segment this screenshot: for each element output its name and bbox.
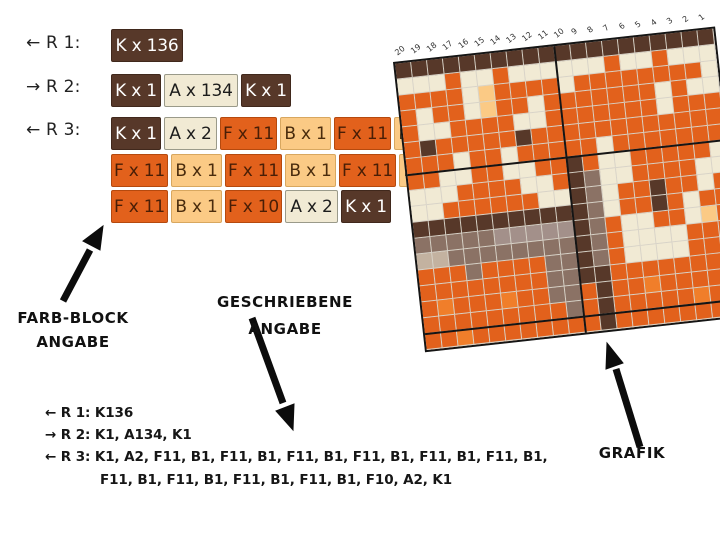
color-block: B x 1: [171, 190, 222, 223]
grid-cell: [480, 101, 498, 119]
chart-column-number: 10: [550, 28, 567, 44]
grid-cell: [627, 117, 645, 135]
grid-cell: [462, 232, 480, 250]
grid-cell: [687, 223, 705, 241]
grid-cell: [593, 249, 611, 267]
grid-cell: [671, 80, 689, 98]
grid-cell: [441, 331, 459, 349]
farb-block-arrow-line: [63, 250, 90, 301]
grid-cell: [453, 297, 471, 315]
grid-cell: [641, 99, 659, 117]
grid-cell: [577, 251, 595, 269]
grid-cell: [498, 260, 516, 278]
grid-cell: [685, 207, 703, 225]
grid-cell: [586, 41, 604, 59]
grid-cell: [674, 112, 692, 130]
chart-column-number: 4: [646, 17, 663, 33]
grid-cell: [681, 30, 699, 48]
grid-cell: [425, 187, 443, 205]
grid-cell: [508, 66, 526, 84]
grid-cell: [429, 74, 447, 92]
grid-cell: [473, 327, 491, 345]
color-block: F x 11: [111, 190, 168, 223]
grid-cell: [492, 67, 510, 85]
grid-cell: [400, 110, 418, 128]
grid-cell: [411, 60, 429, 78]
grid-cell: [680, 159, 698, 177]
grid-cell: [526, 225, 544, 243]
grid-cell: [491, 51, 509, 69]
grid-cell: [510, 82, 528, 100]
chart-column-number: 14: [487, 35, 504, 51]
written-line-r3: ← R 3: K1, A2, F11, B1, F11, B1, F11, B1…: [45, 449, 548, 465]
grid-cell: [418, 124, 436, 142]
grid-cell: [667, 193, 685, 211]
grid-cell: [596, 281, 614, 299]
grid-cell: [590, 73, 608, 91]
grid-cell: [669, 64, 687, 82]
grid-cell: [648, 308, 666, 326]
grid-cell: [683, 46, 701, 64]
color-block: F x 10: [225, 190, 282, 223]
grid-cell: [482, 117, 500, 135]
chart-column-number: 3: [662, 15, 679, 31]
grid-cell: [524, 64, 542, 82]
grid-cell: [572, 59, 590, 77]
color-block: A x 134: [164, 74, 238, 107]
grid-cell: [604, 55, 622, 73]
grid-cell: [634, 36, 652, 54]
grid-cell: [475, 53, 493, 71]
grid-cell: [510, 226, 528, 244]
grid-cell: [482, 262, 500, 280]
grid-cell: [591, 89, 609, 107]
grid-cell: [521, 177, 539, 195]
color-block: K x 1: [111, 117, 161, 150]
row-label-r2: → R 2:: [26, 77, 81, 97]
grid-cell: [568, 172, 586, 190]
grid-cell: [630, 149, 648, 167]
grid-cell: [667, 48, 685, 66]
grid-cell: [529, 112, 547, 130]
grid-cell: [441, 186, 459, 204]
chart-column-number: 17: [439, 40, 456, 56]
grid-cell: [409, 189, 427, 207]
grid-cell: [636, 52, 654, 70]
grid-cell: [466, 263, 484, 281]
grid-cell: [658, 113, 676, 131]
grid-cell: [637, 212, 655, 230]
grid-cell: [503, 163, 521, 181]
grid-cell: [413, 76, 431, 94]
grid-cell: [462, 87, 480, 105]
chart-column-number: 2: [678, 14, 695, 30]
grid-cell: [476, 69, 494, 87]
grid-cell: [641, 244, 659, 262]
grid-cell: [492, 212, 510, 230]
grid-cell: [491, 196, 509, 214]
grid-cell: [648, 163, 666, 181]
chart-column-number: 12: [519, 31, 536, 47]
grid-cell: [666, 32, 684, 50]
color-block: F x 11: [111, 154, 168, 187]
grid-cell: [429, 219, 447, 237]
grid-cell: [556, 60, 574, 78]
grid-cell: [450, 120, 468, 138]
grid-cell: [415, 237, 433, 255]
grid-cell: [664, 161, 682, 179]
grid-cell: [528, 241, 546, 259]
geschriebene-label-line2: ANGABE: [205, 316, 365, 343]
grid-cell: [673, 96, 691, 114]
color-block: B x 1: [280, 117, 331, 150]
grid-cell: [609, 103, 627, 121]
grid-cell: [607, 87, 625, 105]
grid-cell: [484, 133, 502, 151]
grid-cell: [446, 89, 464, 107]
grid-cell: [681, 175, 699, 193]
tutorial-diagram: ← R 1: → R 2: ← R 3: K x 136K x 1A x 134…: [0, 0, 720, 540]
grid-cell: [644, 276, 662, 294]
grid-cell: [699, 45, 717, 63]
chart-column-number: 5: [630, 19, 647, 35]
grid-cell: [423, 172, 441, 190]
grid-cell: [524, 209, 542, 227]
grid-cell: [713, 172, 720, 190]
grid-cell: [683, 191, 701, 209]
grid-cell: [464, 103, 482, 121]
grid-cell: [452, 281, 470, 299]
grid-cell: [549, 287, 567, 305]
chart-column-number: 20: [391, 45, 408, 61]
grid-cell: [475, 198, 493, 216]
grid-cell: [657, 98, 675, 116]
grid-cell: [506, 195, 524, 213]
grid-cell: [439, 170, 457, 188]
grid-cell: [464, 248, 482, 266]
grid-cell: [448, 249, 466, 267]
chart-column-number: 8: [582, 24, 599, 40]
chart-column-number: 18: [423, 42, 440, 58]
grid-cell: [420, 140, 438, 158]
grid-cell: [632, 165, 650, 183]
grid-cell: [699, 189, 717, 207]
grid-cell: [460, 216, 478, 234]
geschriebene-label-line1: GESCHRIEBENE: [205, 289, 365, 316]
grid-cell: [579, 122, 597, 140]
grid-cell: [416, 108, 434, 126]
grid-cell: [704, 237, 720, 255]
grid-cell: [632, 310, 650, 328]
grid-cell: [520, 322, 538, 340]
grid-cell: [437, 299, 455, 317]
grid-cell: [443, 202, 461, 220]
grid-cell: [618, 37, 636, 55]
color-block: K x 1: [111, 74, 161, 107]
grid-cell: [591, 234, 609, 252]
grid-cell: [611, 119, 629, 137]
row-label-r1: ← R 1:: [26, 33, 81, 53]
grid-cell: [418, 269, 436, 287]
grid-cell: [621, 214, 639, 232]
grid-cell: [586, 186, 604, 204]
written-line-r2: → R 2: K1, A134, K1: [45, 427, 192, 443]
grid-cell: [697, 174, 715, 192]
grid-cell: [411, 205, 429, 223]
grid-cell: [455, 168, 473, 186]
grid-cell: [531, 272, 549, 290]
grid-cell: [628, 278, 646, 296]
grid-cell: [545, 255, 563, 273]
grid-cell: [533, 288, 551, 306]
grid-cell: [478, 85, 496, 103]
grid-cell: [494, 83, 512, 101]
grid-cell: [657, 242, 675, 260]
chart-grid: [393, 26, 720, 352]
grid-cell: [420, 285, 438, 303]
color-block: A x 2: [285, 190, 338, 223]
chart-column-number: 13: [503, 33, 520, 49]
grid-cell: [680, 304, 698, 322]
grid-cell: [614, 151, 632, 169]
grid-cell: [519, 161, 537, 179]
grid-cell: [512, 97, 530, 115]
grid-cell: [508, 211, 526, 229]
color-block: F x 11: [220, 117, 277, 150]
grid-cell: [415, 92, 433, 110]
grid-cell: [607, 232, 625, 250]
grid-cell: [430, 235, 448, 253]
grid-cell: [651, 195, 669, 213]
grid-cell: [457, 329, 475, 347]
grid-cell: [468, 135, 486, 153]
grid-cell: [584, 315, 602, 333]
grid-cell: [574, 75, 592, 93]
chart-column-number: 11: [534, 30, 551, 46]
grid-cell: [507, 50, 525, 68]
grid-cell: [487, 165, 505, 183]
grafik-arrow-line: [616, 369, 640, 447]
grid-cell: [445, 218, 463, 236]
grid-cell: [425, 332, 443, 350]
grid-cell: [600, 168, 618, 186]
grid-cell: [416, 253, 434, 271]
grid-cell: [595, 265, 613, 283]
grid-cell: [544, 239, 562, 257]
grid-cell: [655, 227, 673, 245]
grid-cell: [395, 62, 413, 80]
grid-cell: [588, 202, 606, 220]
chart-column-number: 15: [471, 37, 488, 53]
grid-cell: [531, 127, 549, 145]
grid-cell: [567, 156, 585, 174]
grid-cell: [651, 50, 669, 68]
grid-cell: [469, 295, 487, 313]
grid-cell: [434, 122, 452, 140]
grid-cell: [467, 279, 485, 297]
chart-column-number: 7: [598, 23, 615, 39]
grid-cell: [496, 99, 514, 117]
grid-cell: [616, 311, 634, 329]
knitting-chart: 2019181716151413121110987654321: [393, 26, 720, 352]
grid-cell: [688, 239, 706, 257]
written-line-r3-cont: F11, B1, F11, B1, F11, B1, F11, B1, F10,…: [100, 472, 452, 488]
grid-cell: [427, 59, 445, 77]
grid-cell: [505, 324, 523, 342]
color-block: A x 2: [164, 117, 217, 150]
grid-cell: [560, 92, 578, 110]
grid-cell: [623, 230, 641, 248]
grid-cell: [695, 303, 713, 321]
grid-cell: [427, 203, 445, 221]
grid-cell: [602, 184, 620, 202]
color-block: F x 11: [339, 154, 396, 187]
grid-cell: [625, 246, 643, 264]
grid-cell: [535, 159, 553, 177]
grid-cell: [600, 313, 618, 331]
grid-cell: [708, 269, 720, 287]
farb-block-label: FARB-BLOCK ANGABE: [8, 306, 138, 354]
grid-cell: [445, 73, 463, 91]
grid-cell: [706, 253, 720, 271]
farb-block-arrow-head: [83, 226, 103, 250]
grid-cell: [489, 180, 507, 198]
grid-cell: [639, 228, 657, 246]
grid-cell: [579, 267, 597, 285]
grid-cell: [703, 76, 720, 94]
grid-cell: [513, 258, 531, 276]
grid-cell: [627, 262, 645, 280]
grid-cell: [646, 147, 664, 165]
grid-cell: [593, 105, 611, 123]
grid-cell: [522, 193, 540, 211]
grid-cell: [494, 228, 512, 246]
grid-cell: [598, 152, 616, 170]
grid-cell: [450, 265, 468, 283]
grid-cell: [561, 108, 579, 126]
grid-cell: [620, 198, 638, 216]
farb-block-label-line1: FARB-BLOCK: [8, 306, 138, 330]
farb-block-label-line2: ANGABE: [8, 330, 138, 354]
grid-cell: [432, 251, 450, 269]
grid-cell: [637, 67, 655, 85]
grid-cell: [605, 71, 623, 89]
grid-cell: [570, 188, 588, 206]
grid-cell: [577, 106, 595, 124]
grid-cell: [612, 279, 630, 297]
grid-cell: [690, 255, 708, 273]
grid-cell: [432, 106, 450, 124]
grid-cell: [485, 294, 503, 312]
color-block: B x 1: [171, 154, 222, 187]
grid-cell: [701, 60, 719, 78]
grid-cell: [489, 325, 507, 343]
grid-cell: [611, 264, 629, 282]
grid-cell: [499, 276, 517, 294]
grid-cell: [581, 283, 599, 301]
grid-cell: [620, 53, 638, 71]
grid-cell: [692, 271, 710, 289]
grid-cell: [480, 246, 498, 264]
grid-cell: [547, 271, 565, 289]
chart-column-number: 19: [407, 44, 424, 60]
grid-cell: [536, 320, 554, 338]
color-block: K x 1: [341, 190, 391, 223]
grid-cell: [552, 318, 570, 336]
written-line-r1: ← R 1: K136: [45, 405, 133, 421]
grid-cell: [515, 129, 533, 147]
grid-cell: [514, 113, 532, 131]
grid-cell: [706, 108, 720, 126]
grid-cell: [678, 143, 696, 161]
color-block: K x 136: [111, 29, 183, 62]
grid-cell: [704, 92, 720, 110]
grid-cell: [399, 94, 417, 112]
grid-cell: [623, 85, 641, 103]
grid-cell: [431, 90, 449, 108]
geschriebene-arrow-head: [276, 404, 294, 430]
grid-cell: [635, 196, 653, 214]
grid-cell: [448, 104, 466, 122]
grid-cell: [662, 145, 680, 163]
grid-cell: [404, 142, 422, 160]
grid-cell: [685, 62, 703, 80]
grid-cell: [634, 181, 652, 199]
grid-cell: [653, 66, 671, 84]
grid-cell: [618, 182, 636, 200]
geschriebene-label: GESCHRIEBENE ANGABE: [205, 289, 365, 343]
grid-cell: [650, 34, 668, 52]
grid-cell: [443, 57, 461, 75]
color-block: K x 1: [241, 74, 291, 107]
grid-cell: [476, 214, 494, 232]
grafik-arrow-head: [606, 343, 623, 369]
grid-cell: [639, 83, 657, 101]
grid-cell: [528, 96, 546, 114]
grid-cell: [536, 175, 554, 193]
grid-cell: [473, 182, 491, 200]
grid-cell: [461, 71, 479, 89]
grid-cell: [413, 221, 431, 239]
grid-cell: [697, 29, 715, 47]
grid-cell: [538, 191, 556, 209]
grid-cell: [696, 158, 714, 176]
grid-cell: [434, 267, 452, 285]
grid-cell: [703, 221, 720, 239]
grid-cell: [589, 218, 607, 236]
grid-cell: [422, 301, 440, 319]
grid-cell: [653, 211, 671, 229]
chart-column-number: 6: [614, 21, 631, 37]
grid-cell: [526, 80, 544, 98]
grid-cell: [542, 223, 560, 241]
grid-cell: [621, 69, 639, 87]
grid-cell: [446, 233, 464, 251]
chart-column-number: 16: [455, 38, 472, 54]
grid-cell: [588, 57, 606, 75]
grid-cell: [522, 48, 540, 66]
grid-cell: [515, 274, 533, 292]
grid-cell: [643, 115, 661, 133]
grid-cell: [604, 200, 622, 218]
grid-cell: [517, 290, 535, 308]
grid-cell: [676, 272, 694, 290]
grid-cell: [575, 90, 593, 108]
grid-cell: [575, 235, 593, 253]
grid-cell: [574, 219, 592, 237]
color-block: B x 1: [285, 154, 336, 187]
grid-cell: [498, 115, 516, 133]
